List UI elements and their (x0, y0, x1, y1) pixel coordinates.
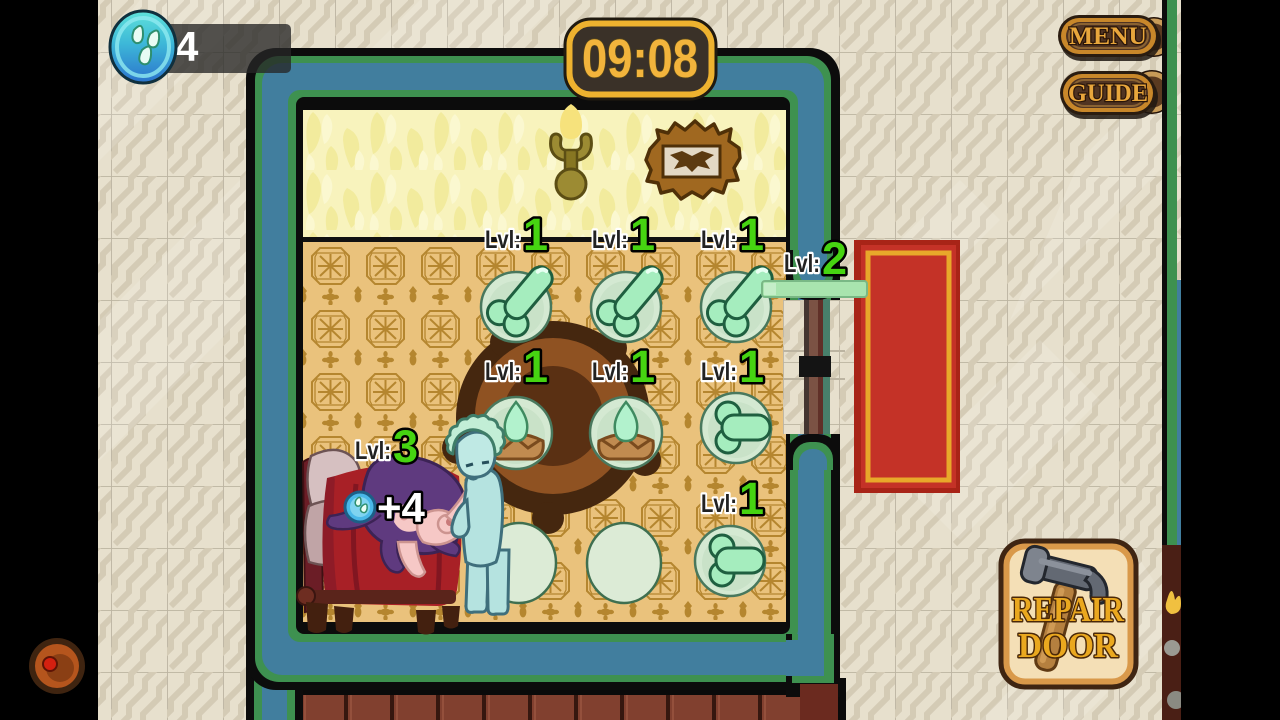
svg-text:09:08: 09:08 (582, 29, 698, 89)
svg-text:Lvl:: Lvl: (485, 358, 521, 386)
svg-text:2: 2 (822, 233, 847, 284)
svg-text:1: 1 (739, 341, 764, 392)
svg-text:MENU: MENU (1069, 23, 1147, 50)
svg-text:1: 1 (630, 209, 655, 260)
svg-text:Lvl:: Lvl: (701, 226, 737, 254)
svg-text:+4: +4 (377, 484, 426, 531)
svg-text:Lvl:: Lvl: (701, 490, 737, 518)
svg-text:REPAIR: REPAIR (1012, 590, 1125, 629)
svg-text:1: 1 (739, 209, 764, 260)
svg-text:Lvl:: Lvl: (485, 226, 521, 254)
svg-text:3: 3 (393, 421, 418, 472)
svg-text:Lvl:: Lvl: (592, 358, 628, 386)
svg-text:Lvl:: Lvl: (701, 358, 737, 386)
svg-text:1: 1 (523, 209, 548, 260)
svg-text:Lvl:: Lvl: (355, 437, 391, 465)
svg-text:DOOR: DOOR (1018, 626, 1119, 665)
svg-text:Lvl:: Lvl: (784, 250, 820, 278)
svg-text:1: 1 (739, 473, 764, 524)
svg-text:Lvl:: Lvl: (592, 226, 628, 254)
svg-text:GUIDE: GUIDE (1068, 80, 1148, 107)
svg-text:1: 1 (523, 341, 548, 392)
svg-text:1: 1 (630, 341, 655, 392)
svg-text:4: 4 (175, 23, 199, 70)
